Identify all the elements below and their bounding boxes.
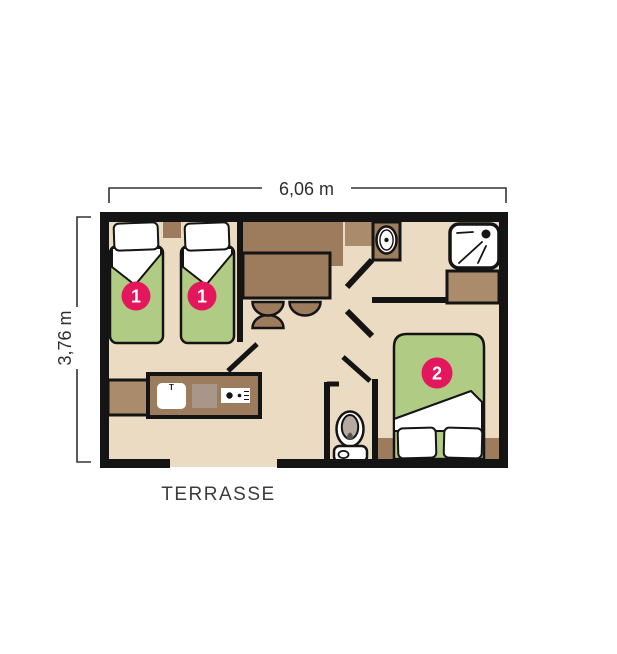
- flush-button: [339, 451, 349, 458]
- pillow: [114, 222, 159, 251]
- kitchen: T: [108, 374, 260, 417]
- dimension-width-label: 6,06 m: [279, 179, 334, 199]
- pillow-left: [398, 428, 437, 459]
- terrace-label: TERRASSE: [161, 484, 275, 505]
- pillow: [185, 222, 230, 251]
- floorplan-page: T: [0, 0, 617, 654]
- kitchen-cabinet: [108, 380, 148, 415]
- pillow-right: [444, 428, 483, 459]
- burner-small: [238, 394, 242, 398]
- washbasin-drain: [384, 238, 388, 242]
- shower-head: [482, 230, 491, 239]
- badge-bed2-number: 2: [432, 364, 442, 384]
- badge-bed1a-number: 1: [131, 287, 141, 307]
- toilet-icon: [334, 412, 367, 463]
- wall-top: [100, 212, 508, 222]
- bedside-right: [483, 438, 499, 460]
- terrace-door-opening: [170, 459, 277, 467]
- bedside-left: [377, 438, 394, 460]
- worktop: [192, 384, 217, 408]
- dimension-height-bracket: [77, 217, 91, 462]
- dimension-width: 6,06 m: [109, 179, 506, 203]
- shower-tray: [450, 224, 499, 268]
- nightstand: [163, 222, 181, 238]
- floorplan-drawing: T: [0, 0, 617, 654]
- dimension-height-label: 3,76 m: [55, 310, 75, 365]
- burner-large: [226, 392, 232, 398]
- shower-arm: [457, 232, 473, 233]
- faucet-mark: T: [169, 383, 174, 392]
- wardrobe: [447, 271, 499, 303]
- dining-table: [243, 253, 330, 298]
- fridge-cabinet: [345, 222, 372, 246]
- wall-left: [100, 212, 109, 468]
- wall-bottom-left: [100, 459, 170, 468]
- double-bed: [394, 334, 484, 459]
- badge-bed1b-number: 1: [197, 287, 207, 307]
- wall-bottom-right: [277, 459, 508, 468]
- shower-icon: [450, 224, 499, 268]
- stove-icon: [221, 388, 250, 403]
- wall-right: [499, 212, 508, 468]
- dimension-height: 3,76 m: [55, 217, 91, 462]
